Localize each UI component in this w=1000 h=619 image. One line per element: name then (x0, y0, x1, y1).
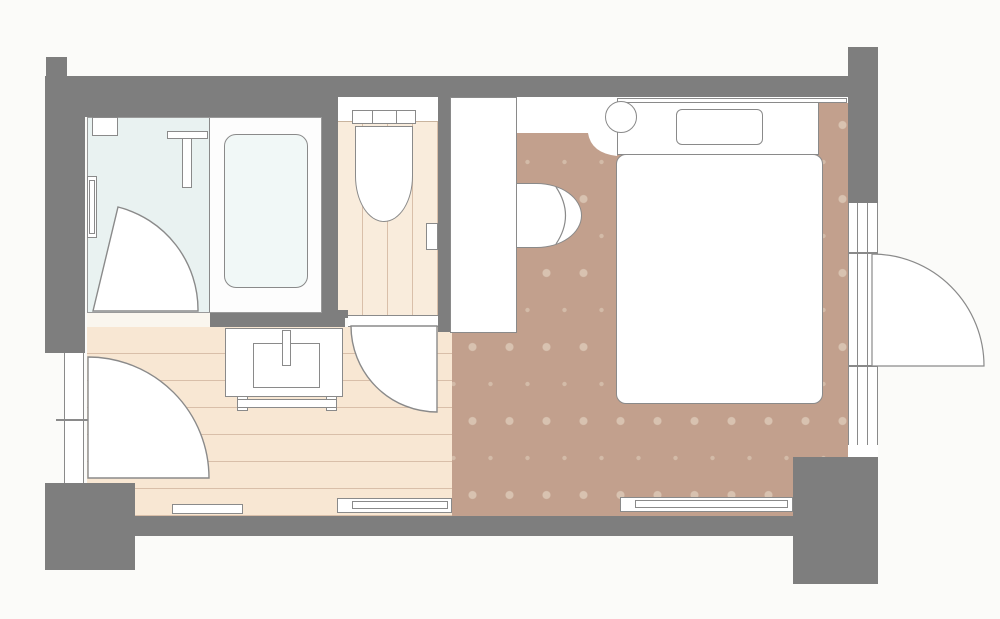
wall-left (45, 76, 85, 353)
wall-bath-bottom (210, 313, 345, 327)
grab-bar-inner (89, 180, 95, 234)
vanity-faucet (282, 330, 291, 366)
bathroom-threshold (87, 313, 210, 327)
wall-top (46, 76, 849, 97)
wall-bath-top (85, 97, 338, 117)
floor-board-bedroom (620, 497, 793, 512)
pillow (676, 109, 763, 145)
window-frame-line (857, 203, 858, 445)
bed-mattress (616, 154, 823, 404)
window-frame-line (867, 203, 868, 445)
bathtub (224, 134, 308, 288)
closet (450, 97, 517, 333)
wall-bottom-left-block (45, 483, 135, 570)
entry-door-frame (64, 353, 84, 483)
wall-toilet-closet (438, 97, 450, 332)
wall-bath-toilet (322, 97, 338, 318)
toilet-shelf-divider (396, 111, 397, 123)
shower-counter-leg (182, 138, 192, 188)
entry-door-centerline-tick (56, 419, 94, 421)
toilet-tank (355, 126, 413, 154)
floor-board-bedroom-inner (635, 500, 788, 508)
window-frame (848, 203, 878, 445)
floor-board-left (172, 504, 243, 514)
stool (605, 101, 637, 133)
wall-top-left-block (46, 57, 67, 76)
balcony-door-swing (872, 254, 984, 366)
window-transom-top (848, 252, 878, 254)
bath-shelf (92, 117, 118, 136)
wall-bottom-right-block (793, 457, 878, 584)
window-transom-bottom (848, 365, 878, 367)
floor-board-center (337, 498, 452, 513)
bedroom-carpet-strip-right (819, 103, 848, 133)
grab-bar (87, 176, 97, 238)
floor-board-center-inner (352, 501, 448, 509)
toilet-paper-holder (426, 223, 438, 250)
toilet-shelf-divider (372, 111, 373, 123)
towel-rail-bar (237, 399, 337, 408)
floor-plan (0, 0, 1000, 619)
toilet-threshold (348, 315, 438, 327)
bedroom-carpet-left (452, 333, 517, 516)
wall-right-top-block (848, 47, 878, 203)
toilet-shelf (352, 110, 416, 124)
wall-bottom (135, 516, 793, 536)
